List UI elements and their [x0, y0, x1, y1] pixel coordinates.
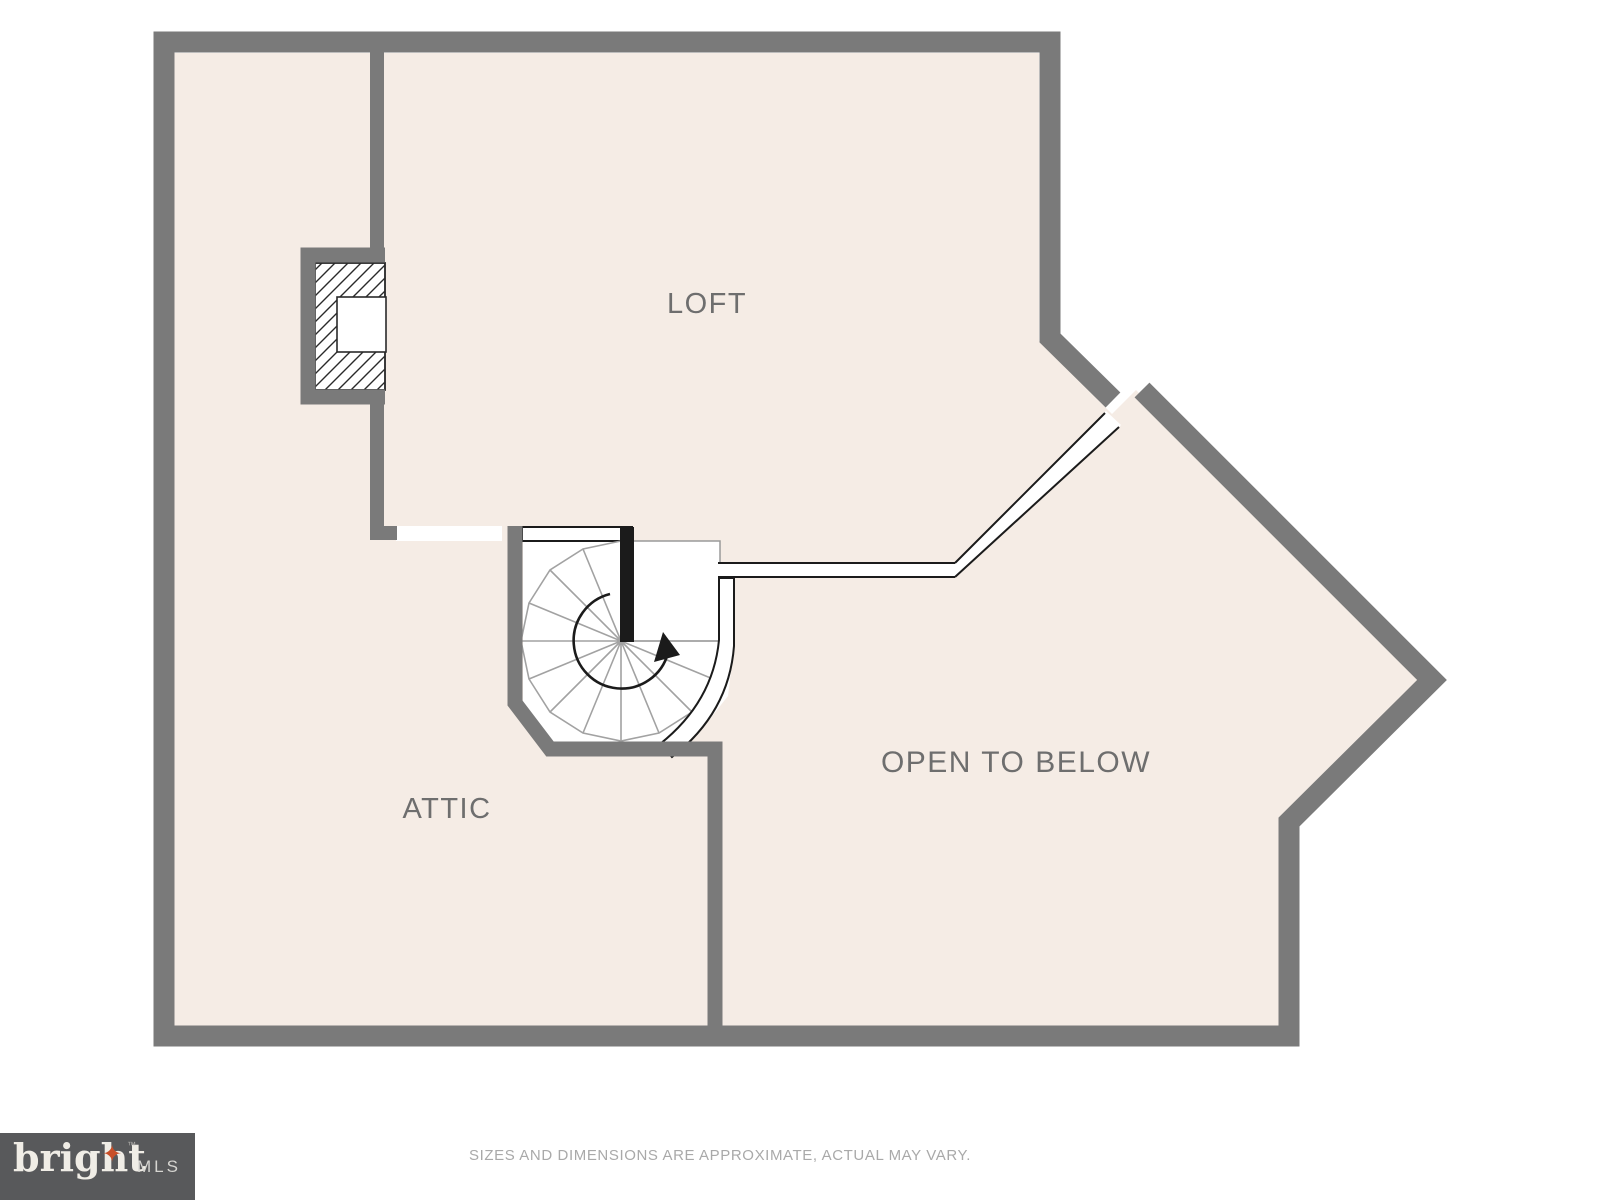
trademark-symbol: ™	[127, 1140, 136, 1150]
stair-top-railing	[522, 527, 632, 541]
railing-horizontal	[718, 562, 955, 578]
chimney-flue	[337, 297, 386, 352]
room-label-open-to-below: OPEN TO BELOW	[881, 746, 1151, 779]
room-label-loft: LOFT	[667, 288, 747, 320]
disclaimer-text: SIZES AND DIMENSIONS ARE APPROXIMATE, AC…	[420, 1147, 1020, 1164]
brightmls-logo: bright ✦ ™ MLS	[0, 1133, 195, 1200]
stair-landing	[633, 541, 720, 641]
star-icon: ✦	[102, 1140, 122, 1169]
interior-wall-foot	[370, 526, 397, 540]
logo-brand-text: bright	[13, 1135, 146, 1180]
room-label-attic: ATTIC	[402, 793, 491, 825]
floor-plan-canvas: LOFT ATTIC OPEN TO BELOW	[0, 0, 1600, 1200]
logo-mls-text: MLS	[137, 1157, 181, 1177]
stair-center-wall	[620, 527, 634, 642]
chimney	[315, 263, 386, 390]
wall-opening	[396, 526, 502, 541]
